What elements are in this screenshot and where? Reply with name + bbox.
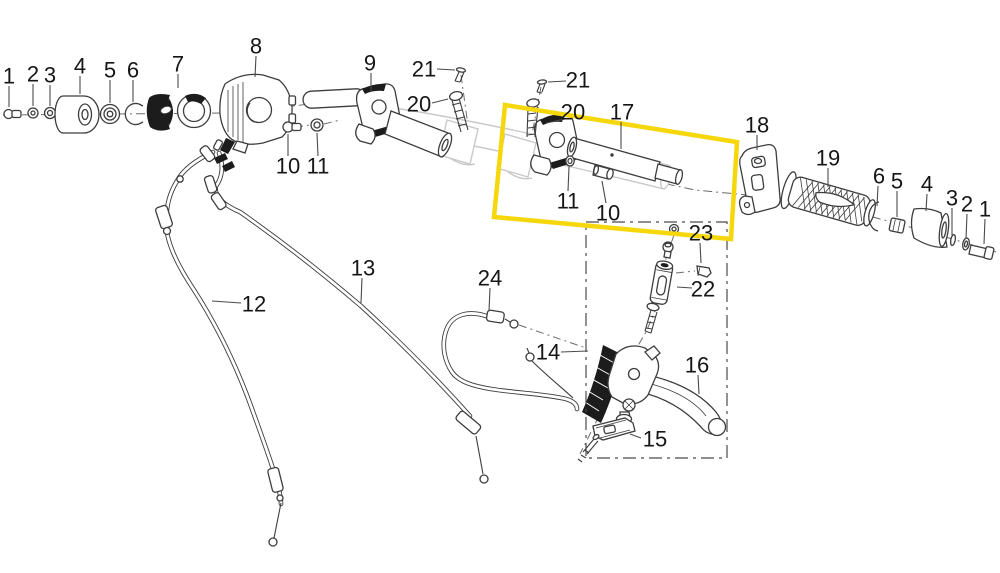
part-label-13-27: 13 — [351, 256, 375, 281]
leader-line-14-29 — [561, 351, 588, 352]
part-label-10-9: 10 — [276, 154, 300, 179]
part-7-throttle-pipe-boot — [147, 94, 211, 131]
part-label-3-23: 3 — [946, 186, 958, 211]
leader-line-23-30 — [700, 243, 701, 263]
leader-line-1-25 — [984, 219, 985, 244]
part-18-switch-housing-right — [740, 145, 781, 215]
part-label-21-13: 21 — [566, 68, 590, 93]
part-label-15-33: 15 — [643, 427, 667, 452]
diagram-canvas: 1234567891011212021201711101819654321121… — [0, 0, 1000, 573]
part-22-cable-adjuster — [645, 225, 679, 334]
part-23-clip — [697, 266, 711, 277]
part-11-washer-right — [566, 156, 574, 166]
leader-line-15-33 — [630, 434, 641, 438]
leader-line-12-26 — [212, 301, 241, 303]
leader-line-2-24 — [966, 214, 967, 239]
leader-line-21-11 — [437, 69, 455, 70]
leader-line-20-12 — [432, 99, 448, 103]
part-label-10-17: 10 — [596, 201, 620, 226]
part-13-throttle-cable — [204, 153, 488, 483]
part-4-spacer-left — [55, 96, 99, 133]
part-label-20-12: 20 — [407, 92, 431, 117]
part-2-nut-left — [28, 108, 38, 118]
part-label-5-4: 5 — [104, 58, 116, 83]
part-label-18-18: 18 — [745, 113, 769, 138]
part-label-11-10: 11 — [307, 154, 330, 179]
part-label-4-22: 4 — [921, 172, 933, 197]
leader-line-16-32 — [698, 375, 699, 394]
part-2-nut-right — [962, 238, 970, 251]
part-label-2-24: 2 — [961, 192, 973, 217]
leader-line-13-27 — [361, 278, 362, 303]
part-10-bolt-left — [283, 122, 301, 132]
part-label-11-16: 11 — [557, 189, 580, 214]
part-label-14-29: 14 — [536, 340, 560, 365]
part-label-22-31: 22 — [691, 277, 715, 302]
part-label-6-5: 6 — [127, 58, 139, 83]
part-11-washer-left — [311, 119, 323, 131]
leader-line-6-20 — [877, 186, 878, 206]
part-label-19-19: 19 — [816, 146, 840, 171]
part-14-lever-perch — [582, 345, 660, 423]
part-3-washer-right — [950, 234, 956, 246]
leader-line-24-28 — [489, 288, 490, 311]
part-1-bolt-right — [969, 245, 994, 260]
part-label-1-25: 1 — [979, 197, 991, 222]
part-label-5-21: 5 — [891, 169, 903, 194]
part-label-21-11: 21 — [412, 57, 436, 82]
part-5-washer-left — [101, 105, 120, 124]
part-label-3-2: 3 — [44, 63, 56, 88]
part-21-screw-right — [537, 80, 547, 93]
part-3-washer-left — [45, 108, 56, 119]
part-label-24-28: 24 — [478, 266, 502, 291]
handlebar-exploded-diagram: 1234567891011212021201711101819654321121… — [0, 0, 1000, 573]
part-label-20-14: 20 — [561, 100, 585, 125]
part-label-16-32: 16 — [685, 353, 709, 378]
part-label-17-15: 17 — [610, 100, 634, 125]
leader-line-21-13 — [548, 81, 566, 82]
part-label-1-0: 1 — [3, 64, 15, 89]
part-1-bolt-left — [4, 110, 21, 119]
part-5-nut-right — [889, 218, 905, 234]
leader-line-22-31 — [677, 287, 692, 288]
part-label-8-7: 8 — [250, 34, 262, 59]
part-label-4-3: 4 — [74, 54, 86, 79]
part-label-9-8: 9 — [364, 51, 376, 76]
part-21-screw-left — [455, 67, 466, 82]
part-19-grip — [778, 170, 879, 232]
part-label-12-26: 12 — [242, 292, 266, 317]
part-label-6-20: 6 — [873, 164, 885, 189]
part-label-7-6: 7 — [172, 52, 184, 77]
part-label-23-30: 23 — [689, 221, 713, 246]
part-4-end-weight-right — [912, 209, 951, 248]
leader-line-11-16 — [568, 167, 569, 191]
part-label-2-1: 2 — [27, 62, 39, 87]
